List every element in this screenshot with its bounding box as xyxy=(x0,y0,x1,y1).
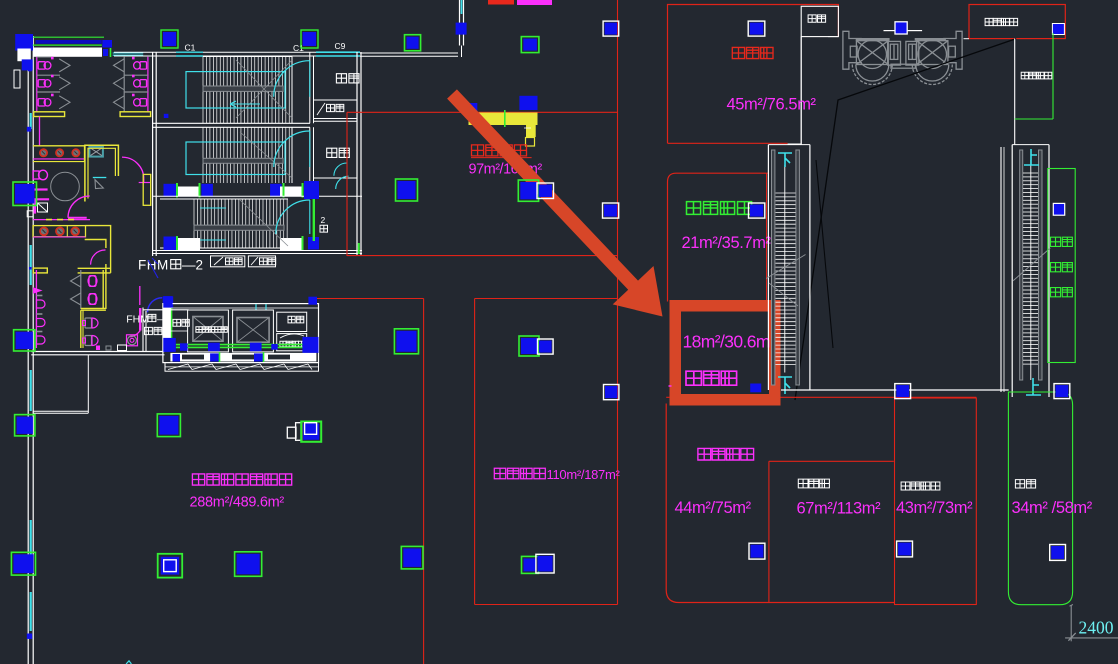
svg-text:21m²/35.7m²: 21m²/35.7m² xyxy=(682,234,772,252)
svg-text:C1: C1 xyxy=(185,43,196,53)
svg-text:45m²/76.5m²: 45m²/76.5m² xyxy=(727,96,817,114)
svg-text:18m²/30.6m: 18m²/30.6m xyxy=(683,332,770,352)
svg-text:43m²/73m²: 43m²/73m² xyxy=(896,499,973,517)
svg-text:2400: 2400 xyxy=(1079,618,1114,638)
svg-text:C9: C9 xyxy=(335,41,346,51)
svg-text:110m²/187m²: 110m²/187m² xyxy=(547,467,621,482)
svg-text:288m²/489.6m²: 288m²/489.6m² xyxy=(190,495,285,511)
svg-text:67m²/113m²: 67m²/113m² xyxy=(797,500,882,518)
svg-text:44m²/75m²: 44m²/75m² xyxy=(675,499,752,517)
svg-text:2: 2 xyxy=(321,215,326,225)
svg-text:—2: —2 xyxy=(182,258,203,273)
svg-text:34m² /58m²: 34m² /58m² xyxy=(1012,499,1093,517)
